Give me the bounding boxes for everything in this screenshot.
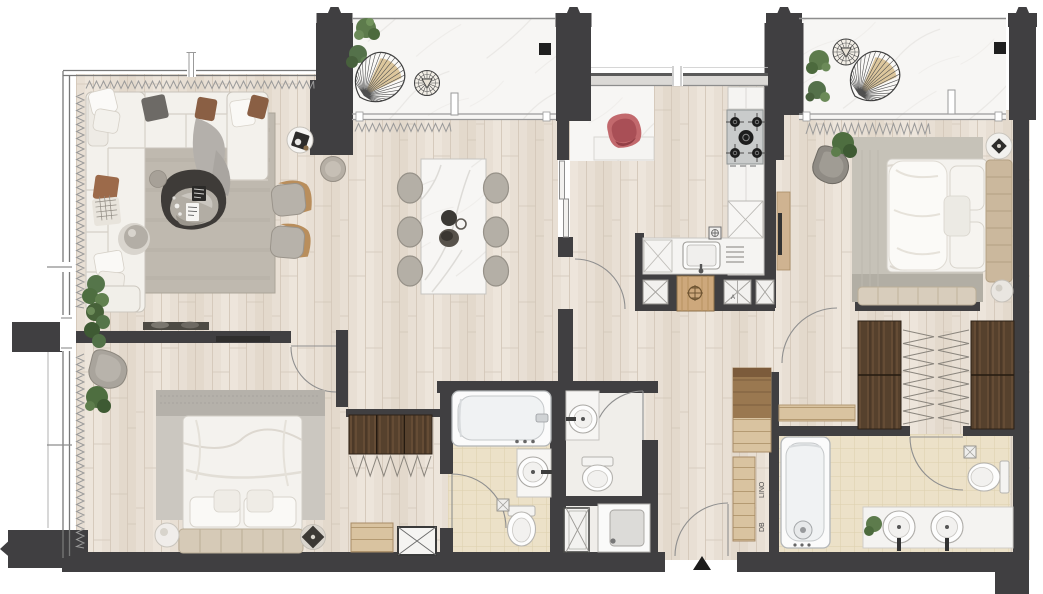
svg-text:DB: DB <box>759 522 766 532</box>
svg-text:A: A <box>731 295 735 301</box>
svg-text:LINO: LINO <box>759 481 766 498</box>
